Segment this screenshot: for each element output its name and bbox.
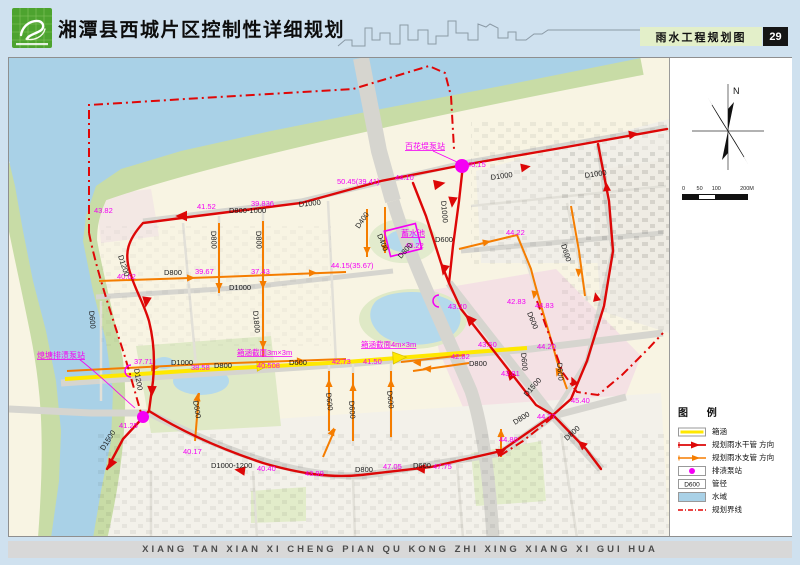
svg-text:N: N xyxy=(733,86,740,96)
pipe-diameter-label: D800-1000 xyxy=(229,206,266,215)
planning-bureau-logo-icon xyxy=(12,8,52,48)
legend-item: 规划雨水支管 方向 xyxy=(678,451,788,464)
map-annotation: 44.83 xyxy=(535,301,554,310)
map-annotation: 43.81 xyxy=(501,369,520,378)
map-annotation: 43.82 xyxy=(94,206,113,215)
svg-text:D600: D600 xyxy=(684,481,700,488)
legend-item-label: 水域 xyxy=(712,491,727,502)
legend-item: 规划雨水干管 方向 xyxy=(678,438,788,451)
water-swatch-icon xyxy=(678,492,706,502)
scale-tick-label: 200M xyxy=(740,186,754,192)
legend: 图 例 箱涵规划雨水干管 方向规划雨水支管 方向排渍泵站D600管径水域规划界线 xyxy=(678,404,788,516)
legend-item-label: 规划界线 xyxy=(712,504,742,515)
pipe-diameter-label: D600 xyxy=(413,461,431,470)
map-annotation: 44.80 xyxy=(499,435,518,444)
pipe-diameter-label: D800 xyxy=(214,361,232,370)
map-annotation: 47.75 xyxy=(433,462,452,471)
map-annotation: 44.10 xyxy=(395,173,414,182)
pipe-diameter-label: D600 xyxy=(87,310,98,329)
map-annotation: 37.43 xyxy=(251,267,270,276)
pipe-diameter-label: D800 xyxy=(355,465,373,474)
map-annotation: 42.83 xyxy=(507,297,526,306)
pipe-diameter-label: D600 xyxy=(435,235,453,244)
boundary-swatch-icon xyxy=(678,505,706,515)
map-annotation: 40.508 xyxy=(257,361,280,370)
map-annotation: 47.05 xyxy=(383,462,402,471)
legend-item: D600管径 xyxy=(678,477,788,490)
map-annotation: 44.15(35.67) xyxy=(331,261,374,270)
pipe-diameter-label: D600 xyxy=(519,352,530,371)
header: 湘潭县西城片区控制性详细规划 雨水工程规划图 29 xyxy=(0,0,800,57)
map-annotation: 43.20 xyxy=(448,302,467,311)
map-annotation: 45.40 xyxy=(571,396,590,405)
legend-title: 图 例 xyxy=(678,404,788,419)
map-annotation: 50.45(39.41) xyxy=(337,177,380,186)
scale-bar-ticks: 050100200M xyxy=(682,186,748,194)
map-annotation: 43.50 xyxy=(478,340,497,349)
pipe-diameter-label: D1000 xyxy=(439,200,450,223)
north-arrow-icon: N xyxy=(688,76,768,176)
map-annotation: 43.99 xyxy=(305,469,324,478)
map-annotation: 41.52 xyxy=(197,202,216,211)
legend-item: 排渍泵站 xyxy=(678,464,788,477)
scale-tick-label: 50 xyxy=(697,186,703,192)
pipe-diameter-label: D1000-1200 xyxy=(211,461,252,470)
pipe-diameter-label: D1000 xyxy=(229,283,251,292)
page-title: 湘潭县西城片区控制性详细规划 xyxy=(58,15,345,42)
map-annotation: 41.25 xyxy=(119,421,138,430)
city-skyline-decoration xyxy=(330,10,650,50)
diameter-swatch-icon: D600 xyxy=(678,479,706,489)
page-number-badge: 29 xyxy=(763,27,788,46)
map-annotation: 37.71 xyxy=(134,357,153,366)
pipe-diameter-label: D800 xyxy=(209,231,219,249)
legend-item-label: 箱涵 xyxy=(712,426,727,437)
scale-tick-label: 100 xyxy=(712,186,721,192)
pipe-diameter-label: D600 xyxy=(555,362,566,381)
map-annotation: 42.73 xyxy=(332,357,351,366)
planning-sheet: 湘潭县西城片区控制性详细规划 雨水工程规划图 29 xyxy=(0,0,800,565)
side-panel: N 050100200M 图 例 箱涵规划雨水干管 方向规划雨水支管 方向排渍泵… xyxy=(669,58,792,536)
main-pipe-swatch-icon xyxy=(678,440,706,450)
pipe-diameter-label: D1800 xyxy=(251,310,262,333)
pipe-diameter-label: D600 xyxy=(324,392,335,411)
pump-station-swatch-icon xyxy=(678,466,706,476)
pipe-diameter-label: D600 xyxy=(347,401,357,420)
map-annotation: 39.67 xyxy=(195,267,214,276)
pipe-diameter-label: D600 xyxy=(289,358,307,367)
pipe-diameter-label: D600 xyxy=(385,390,396,409)
map-annotation: 40.17 xyxy=(183,447,202,456)
pipe-diameter-label: D800 xyxy=(469,359,487,368)
map-annotation: 熄塘排渍泵站 xyxy=(37,350,85,360)
scale-bar: 050100200M xyxy=(682,186,748,200)
map-canvas: 43.8241.5239.83650.45(39.41)44.10百花堤泵站40… xyxy=(9,58,669,536)
map-annotation: 42.82 xyxy=(451,352,470,361)
legend-item-label: 管径 xyxy=(712,478,727,489)
pipe-diameter-label: D800 xyxy=(164,268,182,277)
pipe-diameter-label: D800 xyxy=(254,231,264,249)
map-annotation: 41.50 xyxy=(363,357,382,366)
map-annotation: 40.15 xyxy=(467,160,486,169)
legend-items: 箱涵规划雨水干管 方向规划雨水支管 方向排渍泵站D600管径水域规划界线 xyxy=(678,425,788,516)
footer-pinyin-title: XIANG TAN XIAN XI CHENG PIAN QU KONG ZHI… xyxy=(142,544,658,555)
map-annotation: 箱涵截面4m×3m xyxy=(361,339,416,349)
legend-item-label: 规划雨水干管 方向 xyxy=(712,439,774,450)
sheet-type-badge: 雨水工程规划图 xyxy=(640,27,762,46)
legend-item-label: 规划雨水支管 方向 xyxy=(712,452,774,463)
map-annotation: 44.20 xyxy=(537,342,556,351)
scale-bar-segments xyxy=(682,194,748,200)
legend-item: 箱涵 xyxy=(678,425,788,438)
map-annotation: 40.40 xyxy=(257,464,276,473)
footer-bar: XIANG TAN XIAN XI CHENG PIAN QU KONG ZHI… xyxy=(8,541,792,558)
map-annotation: 蓄水池 xyxy=(401,228,425,238)
sheet-body: 43.8241.5239.83650.45(39.41)44.10百花堤泵站40… xyxy=(8,57,792,537)
legend-item-label: 排渍泵站 xyxy=(712,465,742,476)
map-annotation: 38.58 xyxy=(191,363,210,372)
map-annotation: 44.77 xyxy=(537,412,556,421)
legend-item: 水域 xyxy=(678,490,788,503)
map-annotation: 44.22 xyxy=(506,228,525,237)
branch-pipe-swatch-icon xyxy=(678,453,706,463)
pipe-diameter-label: D1000 xyxy=(171,358,193,367)
legend-item: 规划界线 xyxy=(678,503,788,516)
map-area: 43.8241.5239.83650.45(39.41)44.10百花堤泵站40… xyxy=(9,58,669,536)
map-annotation: 箱涵截面3m×3m xyxy=(237,347,292,357)
map-annotation: 百花堤泵站 xyxy=(405,141,445,151)
culvert-swatch-icon xyxy=(678,427,706,437)
scale-tick-label: 0 xyxy=(682,186,685,192)
